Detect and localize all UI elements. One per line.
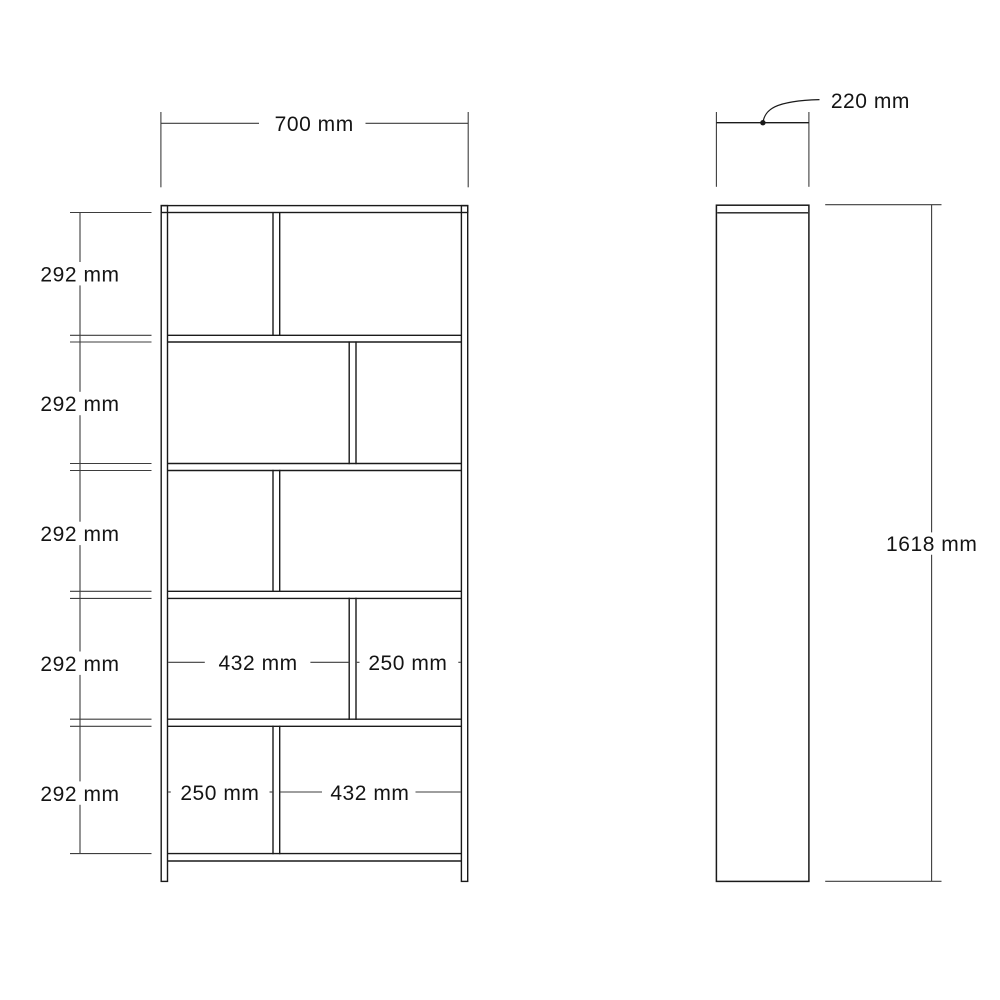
svg-text:250 mm: 250 mm bbox=[180, 782, 259, 805]
svg-text:432 mm: 432 mm bbox=[330, 782, 409, 805]
svg-text:700 mm: 700 mm bbox=[275, 113, 354, 136]
svg-text:432 mm: 432 mm bbox=[219, 652, 298, 675]
svg-text:292 mm: 292 mm bbox=[40, 263, 119, 286]
svg-text:1618 mm: 1618 mm bbox=[886, 533, 977, 556]
svg-text:220 mm: 220 mm bbox=[831, 90, 910, 113]
svg-text:292 mm: 292 mm bbox=[40, 393, 119, 416]
svg-text:292 mm: 292 mm bbox=[40, 523, 119, 546]
svg-text:292 mm: 292 mm bbox=[40, 653, 119, 676]
svg-text:292 mm: 292 mm bbox=[40, 783, 119, 806]
svg-text:250 mm: 250 mm bbox=[368, 652, 447, 675]
